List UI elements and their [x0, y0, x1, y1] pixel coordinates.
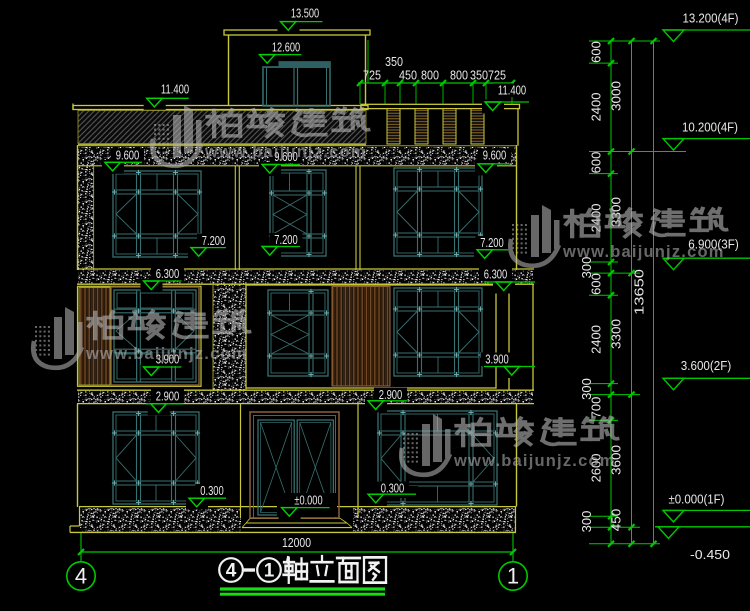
svg-text:450: 450 — [399, 69, 417, 83]
svg-text:7.200: 7.200 — [480, 236, 504, 250]
svg-text:±0.000: ±0.000 — [294, 494, 322, 508]
svg-text:3000: 3000 — [610, 81, 624, 111]
svg-text:12000: 12000 — [282, 536, 311, 550]
svg-text:3.900: 3.900 — [485, 353, 509, 367]
svg-text:800: 800 — [421, 69, 439, 83]
svg-text:13.200(4F): 13.200(4F) — [683, 12, 739, 26]
svg-text:10.200(4F): 10.200(4F) — [682, 121, 738, 135]
svg-text:350: 350 — [470, 69, 488, 83]
svg-text:300: 300 — [580, 511, 594, 533]
svg-text:725: 725 — [363, 69, 381, 83]
svg-text:700: 700 — [590, 397, 604, 419]
svg-text:350: 350 — [385, 55, 403, 69]
svg-text:6.300: 6.300 — [156, 267, 180, 281]
svg-text:13650: 13650 — [633, 269, 647, 315]
svg-text:800: 800 — [450, 69, 468, 83]
svg-text:725: 725 — [488, 69, 506, 83]
svg-text:600: 600 — [590, 273, 604, 295]
svg-text:11.400: 11.400 — [498, 84, 526, 98]
svg-text:4: 4 — [75, 564, 87, 589]
svg-text:4: 4 — [226, 561, 237, 582]
svg-text:7.200: 7.200 — [202, 234, 226, 248]
svg-text:2.900: 2.900 — [156, 390, 180, 404]
svg-text:9.600: 9.600 — [483, 149, 507, 163]
svg-text:300: 300 — [580, 378, 594, 400]
svg-text:0.300: 0.300 — [381, 482, 405, 496]
svg-text:13.500: 13.500 — [291, 7, 319, 21]
svg-text:±0.000(1F): ±0.000(1F) — [669, 493, 725, 507]
svg-text:7.200: 7.200 — [274, 233, 298, 247]
svg-text:www.baijunjz.com: www.baijunjz.com — [204, 143, 367, 161]
svg-text:6.300: 6.300 — [484, 268, 508, 282]
svg-text:2400: 2400 — [590, 325, 604, 354]
svg-text:600: 600 — [590, 152, 604, 174]
svg-text:-0.450: -0.450 — [690, 548, 730, 562]
svg-text:www.baijunjz.com: www.baijunjz.com — [453, 452, 616, 470]
svg-text:www.baijunjz.com: www.baijunjz.com — [85, 345, 248, 363]
svg-text:9.600: 9.600 — [116, 149, 140, 163]
svg-text:1: 1 — [507, 564, 519, 589]
svg-text:600: 600 — [590, 41, 604, 63]
svg-text:www.baijunjz.com: www.baijunjz.com — [562, 243, 725, 261]
svg-text:3.600(2F): 3.600(2F) — [681, 359, 731, 373]
svg-text:2400: 2400 — [590, 93, 604, 122]
svg-text:1: 1 — [264, 561, 275, 582]
svg-text:2.900: 2.900 — [379, 388, 403, 402]
svg-text:11.400: 11.400 — [161, 83, 189, 97]
svg-text:3300: 3300 — [610, 319, 624, 349]
svg-text:12.600: 12.600 — [272, 41, 300, 55]
svg-text:0.300: 0.300 — [200, 484, 224, 498]
svg-text:450: 450 — [610, 509, 624, 532]
